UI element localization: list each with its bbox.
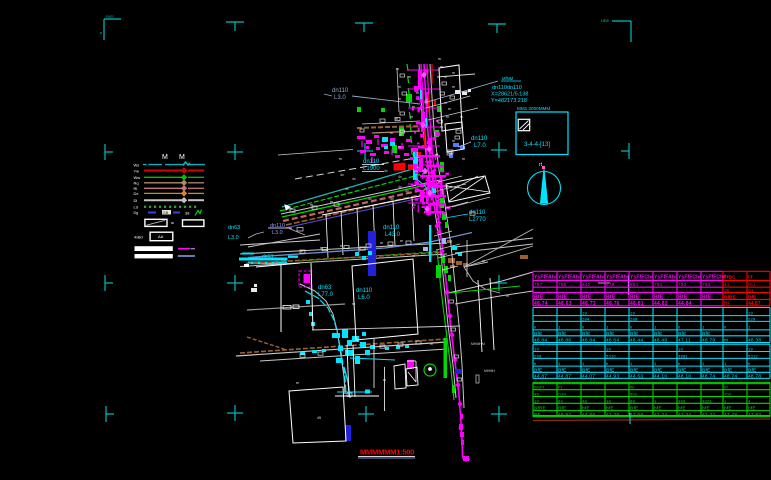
svg-text:B: B <box>100 31 102 35</box>
svg-text:rn: rn <box>340 244 343 248</box>
svg-text:48.48: 48.48 <box>654 337 667 343</box>
svg-text:bf: bf <box>724 385 728 390</box>
svg-text:1: 1 <box>654 398 657 403</box>
svg-text:DLL: DLL <box>748 282 757 287</box>
svg-text:44.87: 44.87 <box>558 373 571 379</box>
svg-text:BfE: BfE <box>606 367 614 373</box>
svg-text:BfE: BfE <box>558 367 566 373</box>
svg-text:4x: 4x <box>398 175 402 179</box>
svg-text:BfE: BfE <box>748 367 756 373</box>
svg-text:BF: BF <box>534 412 541 418</box>
svg-text:bfE: bfE <box>724 406 732 412</box>
svg-text:48: 48 <box>582 398 587 403</box>
svg-text:48.74: 48.74 <box>702 373 715 379</box>
svg-text:BfE: BfE <box>654 367 662 373</box>
svg-text:48.78: 48.78 <box>748 373 761 379</box>
svg-text:BfE: BfE <box>748 294 757 300</box>
svg-text:h: h <box>678 361 680 366</box>
svg-text:dn110: dn110 <box>383 225 400 231</box>
svg-text:BfE: BfE <box>558 331 566 337</box>
svg-text:L77.0: L77.0 <box>318 292 334 298</box>
svg-text:48.84: 48.84 <box>582 337 595 343</box>
svg-text:45: 45 <box>317 416 321 420</box>
svg-text:BfE: BfE <box>724 367 732 373</box>
svg-text:MHMHM: MHMHM <box>471 342 485 346</box>
svg-text:4x: 4x <box>368 197 372 201</box>
svg-text:L3.0: L3.0 <box>334 95 346 101</box>
svg-text:BfE: BfE <box>702 294 712 300</box>
svg-text:19: 19 <box>582 310 587 315</box>
svg-text:BfE: BfE <box>558 406 566 412</box>
svg-text:MM1:2000MMM: MM1:2000MMM <box>517 106 550 111</box>
svg-text:rn: rn <box>506 294 509 298</box>
svg-text:rn: rn <box>482 259 485 263</box>
svg-text:1: 1 <box>724 398 727 403</box>
svg-text:BfE: BfE <box>678 294 688 300</box>
svg-text:dn63: dn63 <box>262 254 273 260</box>
svg-text:BfE: BfE <box>654 331 662 337</box>
svg-text:Ff: Ff <box>558 385 563 390</box>
svg-text:4x: 4x <box>390 197 394 201</box>
svg-text:YsFfFCh4: YsFfFCh4 <box>702 274 726 280</box>
svg-text:19: 19 <box>748 346 753 351</box>
svg-text:Ww: Ww <box>134 175 141 180</box>
svg-text:48.63: 48.63 <box>558 301 572 307</box>
svg-text:rn: rn <box>410 115 413 119</box>
svg-text:rn: rn <box>400 239 403 243</box>
svg-text:h: h <box>748 361 750 366</box>
svg-text:BF: BF <box>724 301 730 307</box>
svg-text:dn110: dn110 <box>332 88 349 94</box>
svg-text:BfE: BfE <box>702 331 710 337</box>
svg-text:3821: 3821 <box>702 398 712 403</box>
svg-text:Dx: Dx <box>134 191 139 196</box>
svg-text:88: 88 <box>630 398 635 403</box>
svg-text:h: h <box>582 325 584 330</box>
svg-text:48.79: 48.79 <box>702 337 715 343</box>
svg-text:EHES: EHES <box>106 15 114 19</box>
svg-text:791: 791 <box>654 282 663 287</box>
svg-text:288: 288 <box>630 317 638 322</box>
svg-text:HEE: HEE <box>601 18 610 23</box>
svg-text:D30: D30 <box>558 391 567 396</box>
svg-text:dn110dn110: dn110dn110 <box>492 85 522 91</box>
svg-text:48.10: 48.10 <box>678 373 691 379</box>
svg-text:=: = <box>171 221 174 227</box>
svg-text:rn: rn <box>396 67 399 71</box>
svg-text:1: 1 <box>702 325 705 330</box>
svg-text:rn: rn <box>412 105 415 109</box>
svg-text:84: 84 <box>558 398 563 403</box>
svg-text:L3.0: L3.0 <box>228 235 239 241</box>
svg-text:44.84: 44.84 <box>678 301 692 307</box>
svg-text:BfE: BfE <box>678 367 686 373</box>
svg-text:L3.0: L3.0 <box>272 230 283 236</box>
svg-text:Rq: Rq <box>134 181 139 186</box>
svg-text:YsFfFCh4: YsFfFCh4 <box>678 274 702 280</box>
svg-text:rn: rn <box>398 85 401 89</box>
svg-text:47.32: 47.32 <box>702 412 715 418</box>
svg-text:1: 1 <box>702 361 705 366</box>
svg-text:MHMH: MHMH <box>484 369 495 373</box>
svg-text:48.64: 48.64 <box>606 337 619 343</box>
svg-text:AA: AA <box>158 234 164 239</box>
svg-text:rn: rn <box>352 302 355 306</box>
svg-text:BfE: BfE <box>702 367 710 373</box>
svg-text:M: M <box>179 154 185 161</box>
svg-text:48.76: 48.76 <box>606 301 620 307</box>
svg-text:rn: rn <box>452 85 455 89</box>
svg-text:GB: GB <box>163 210 169 215</box>
svg-text:BfE: BfE <box>582 294 592 300</box>
svg-text:1: 1 <box>558 361 561 366</box>
svg-text:h: h <box>630 325 632 330</box>
svg-text:48.73: 48.73 <box>582 301 596 307</box>
svg-text:dn110: dn110 <box>471 136 488 142</box>
svg-text:rn: rn <box>412 254 415 258</box>
svg-text:rn: rn <box>430 342 433 346</box>
svg-text:4x: 4x <box>412 203 416 207</box>
svg-text:1: 1 <box>630 361 633 366</box>
svg-text:BfE: BfE <box>534 331 542 337</box>
svg-text:BfE: BfE <box>606 331 614 337</box>
svg-text:dn110: dn110 <box>356 288 373 294</box>
svg-text:BfE: BfE <box>534 367 542 373</box>
svg-text:47.48: 47.48 <box>724 412 737 418</box>
svg-text:MMMMMM1:500: MMMMMM1:500 <box>360 448 414 457</box>
svg-text:h: h <box>724 325 726 330</box>
svg-text:D1: D1 <box>748 288 754 293</box>
svg-text:rn: rn <box>390 131 393 135</box>
svg-text:rn: rn <box>398 97 401 101</box>
svg-text:1: 1 <box>582 361 585 366</box>
svg-text:rn: rn <box>320 246 323 250</box>
svg-text:17.83: 17.83 <box>748 412 761 418</box>
svg-text:Dg: Dg <box>134 211 139 215</box>
svg-text:4x: 4x <box>345 187 349 191</box>
svg-text:48.38: 48.38 <box>748 337 761 343</box>
svg-text:891: 891 <box>630 282 639 287</box>
svg-text:19: 19 <box>606 346 611 351</box>
svg-text:rn: rn <box>444 75 447 79</box>
svg-text:rn: rn <box>330 200 333 204</box>
svg-text:BfE: BfE <box>582 331 590 337</box>
svg-text:rn: rn <box>310 203 313 207</box>
svg-text:BfE: BfE <box>534 294 544 300</box>
svg-text:rn: rn <box>466 90 469 94</box>
svg-text:rn: rn <box>339 157 342 161</box>
svg-text:bfE: bfE <box>582 406 590 412</box>
svg-text:1: 1 <box>606 325 609 330</box>
svg-text:18: 18 <box>606 398 611 403</box>
svg-text:bfE: bfE <box>678 406 686 412</box>
svg-text:4: 4 <box>748 398 751 403</box>
svg-text:48.86: 48.86 <box>558 337 571 343</box>
svg-text:rn: rn <box>399 133 402 137</box>
svg-text:48.74: 48.74 <box>724 373 737 379</box>
svg-text:bfE: bfE <box>606 406 614 412</box>
svg-text:rn: rn <box>440 65 443 69</box>
svg-text:19: 19 <box>534 346 539 351</box>
svg-text:YsFfFAh4: YsFfFAh4 <box>606 274 630 280</box>
svg-text:44.93: 44.93 <box>606 373 619 379</box>
svg-text:44: 44 <box>724 282 730 287</box>
svg-text:4x: 4x <box>384 169 388 173</box>
svg-text:229: 229 <box>748 317 756 322</box>
svg-text:rn: rn <box>438 57 441 61</box>
svg-text:19: 19 <box>534 398 539 403</box>
svg-text:YsFfFAh4: YsFfFAh4 <box>654 274 678 280</box>
svg-text:m: m <box>724 338 728 343</box>
svg-text:L6.0: L6.0 <box>358 295 370 301</box>
svg-text:48.84: 48.84 <box>534 337 547 343</box>
svg-text:bfE: bfE <box>748 406 756 412</box>
svg-text:1: 1 <box>724 361 727 366</box>
svg-text:44.63: 44.63 <box>630 373 643 379</box>
svg-text:L2770: L2770 <box>469 217 486 223</box>
svg-text:Ws: Ws <box>134 162 140 167</box>
svg-text:rn: rn <box>452 139 455 143</box>
svg-text:L7.0: L7.0 <box>474 143 486 149</box>
svg-text:44.82: 44.82 <box>654 301 668 307</box>
svg-text:1: 1 <box>654 361 657 366</box>
svg-text:M: M <box>162 154 168 161</box>
svg-text:rn: rn <box>416 91 419 95</box>
svg-text:4xBd: 4xBd <box>134 235 143 239</box>
svg-text:h: h <box>678 325 680 330</box>
svg-text:44.88: 44.88 <box>582 412 595 418</box>
svg-text:BfE: BfE <box>606 294 616 300</box>
svg-text:WsFf: WsFf <box>534 385 545 390</box>
svg-text:rn: rn <box>395 117 398 121</box>
svg-text:1: 1 <box>558 325 561 330</box>
svg-text:Ff: Ff <box>748 274 753 280</box>
svg-text:17.69: 17.69 <box>630 412 643 418</box>
svg-text:48.44: 48.44 <box>630 337 643 343</box>
svg-text:X=28621/5.138: X=28621/5.138 <box>491 92 528 98</box>
svg-text:rn: rn <box>383 378 386 382</box>
svg-text:BfE: BfE <box>582 367 590 373</box>
svg-text:299: 299 <box>534 353 542 358</box>
svg-text:BfE: BfE <box>558 294 568 300</box>
svg-text:48.81: 48.81 <box>630 301 644 307</box>
svg-text:BfBE: BfBE <box>724 294 737 300</box>
svg-text:rn: rn <box>380 241 383 245</box>
svg-text:794: 794 <box>702 282 711 287</box>
svg-text:dn63: dn63 <box>318 285 332 291</box>
svg-text:BfE: BfE <box>654 294 664 300</box>
svg-text:Y=482173.218: Y=482173.218 <box>491 98 527 104</box>
svg-text:Dl: Dl <box>134 198 138 203</box>
svg-text:h: h <box>606 361 608 366</box>
svg-text:44.10: 44.10 <box>654 373 667 379</box>
svg-text:5312: 5312 <box>748 353 758 358</box>
svg-text:1: 1 <box>654 325 657 330</box>
svg-text:47.28: 47.28 <box>606 412 619 418</box>
svg-text:38: 38 <box>724 288 730 293</box>
svg-text:BfE: BfE <box>630 294 640 300</box>
svg-text:YsFfFAh4: YsFfFAh4 <box>558 274 582 280</box>
svg-text:4x: 4x <box>340 173 344 177</box>
svg-text:48.92: 48.92 <box>558 412 571 418</box>
svg-text:Yw: Yw <box>134 168 140 173</box>
svg-text:L43.0: L43.0 <box>385 232 401 238</box>
svg-text:rn: rn <box>300 249 303 253</box>
svg-text:502: 502 <box>630 391 638 396</box>
svg-text:19: 19 <box>630 310 635 315</box>
svg-text:W: W <box>630 385 634 390</box>
svg-text:bfE: bfE <box>654 406 662 412</box>
svg-text:MfNM: MfNM <box>502 76 514 81</box>
svg-text:rn: rn <box>398 145 401 149</box>
svg-text:4x: 4x <box>405 189 409 193</box>
svg-text:YsFfFAh4: YsFfFAh4 <box>534 274 558 280</box>
svg-text:757: 757 <box>534 282 543 287</box>
svg-text:BfBE: BfBE <box>534 406 546 412</box>
svg-text:rn: rn <box>448 107 451 111</box>
svg-text:792: 792 <box>678 282 687 287</box>
svg-text:3881: 3881 <box>678 353 688 358</box>
svg-text:44.87: 44.87 <box>534 373 547 379</box>
svg-text:842: 842 <box>582 282 591 287</box>
svg-text:dn63: dn63 <box>228 225 240 231</box>
svg-text:rn: rn <box>296 381 299 385</box>
svg-text:47.34: 47.34 <box>678 412 691 418</box>
svg-text:44.87: 44.87 <box>748 301 761 307</box>
svg-text:FfBC: FfBC <box>724 274 736 280</box>
svg-text:38: 38 <box>185 211 190 216</box>
svg-text:284: 284 <box>582 317 590 322</box>
svg-text:BfE: BfE <box>630 331 638 337</box>
svg-text:785: 785 <box>558 282 567 287</box>
svg-text:19: 19 <box>678 346 683 351</box>
svg-text:rn: rn <box>462 157 465 161</box>
svg-text:19: 19 <box>748 310 753 315</box>
svg-text:rn: rn <box>440 125 443 129</box>
svg-text:380: 380 <box>678 398 686 403</box>
svg-text:5310: 5310 <box>606 353 616 358</box>
svg-text:702: 702 <box>724 391 732 396</box>
svg-text:4x: 4x <box>398 185 402 189</box>
svg-text:bfE: bfE <box>702 406 710 412</box>
svg-text:BfE: BfE <box>678 331 686 337</box>
svg-text:1: 1 <box>748 325 751 330</box>
svg-text:BfE: BfE <box>630 367 638 373</box>
svg-text:45: 45 <box>534 391 539 396</box>
svg-text:3-4-4-[13]: 3-4-4-[13] <box>524 142 550 148</box>
svg-text:47.24: 47.24 <box>654 412 667 418</box>
svg-text:h: h <box>534 361 536 366</box>
svg-text:48.74: 48.74 <box>534 301 548 307</box>
svg-text:YsFfFAh4: YsFfFAh4 <box>582 274 606 280</box>
svg-text:4x: 4x <box>352 177 356 181</box>
svg-text:BfE: BfE <box>630 406 638 412</box>
svg-text:rn: rn <box>460 115 463 119</box>
svg-text:rn: rn <box>408 75 411 79</box>
svg-text:YsFfFCh4: YsFfFCh4 <box>630 274 654 280</box>
svg-text:rn: rn <box>452 71 455 75</box>
svg-text:47.11: 47.11 <box>678 337 691 343</box>
svg-text:Ld: Ld <box>134 205 138 210</box>
svg-text:879: 879 <box>606 282 615 287</box>
svg-text:rn: rn <box>435 153 438 157</box>
svg-text:h: h <box>534 325 536 330</box>
svg-text:44.07: 44.07 <box>582 373 595 379</box>
